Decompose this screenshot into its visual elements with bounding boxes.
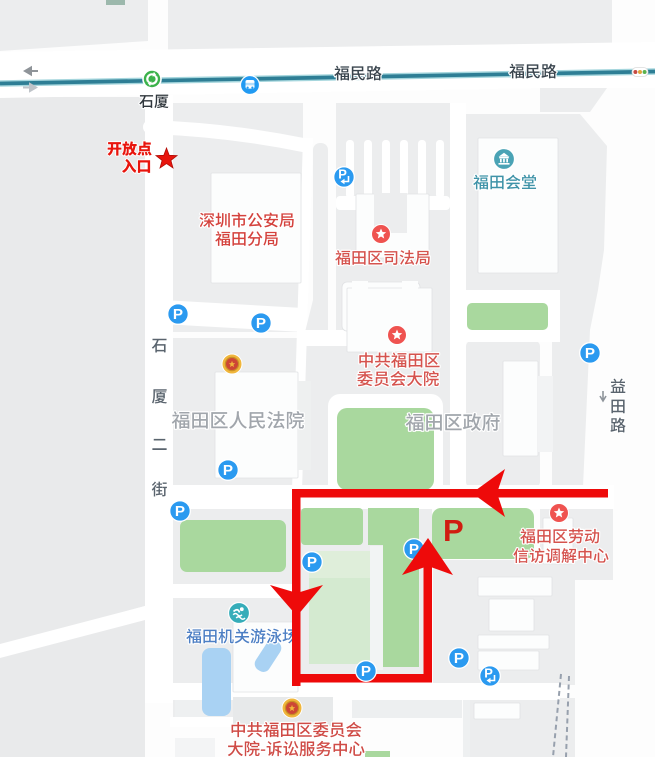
svg-text:P: P — [443, 513, 464, 548]
svg-text:P: P — [361, 663, 371, 680]
svg-text:P: P — [175, 503, 185, 520]
svg-text:P: P — [256, 315, 266, 332]
svg-text:P: P — [454, 650, 464, 667]
svg-text:P: P — [484, 666, 493, 681]
svg-text:P: P — [223, 462, 233, 479]
svg-text:P: P — [173, 306, 183, 323]
svg-text:P: P — [307, 554, 317, 571]
svg-text:P: P — [585, 345, 595, 362]
svg-text:P: P — [338, 167, 347, 182]
